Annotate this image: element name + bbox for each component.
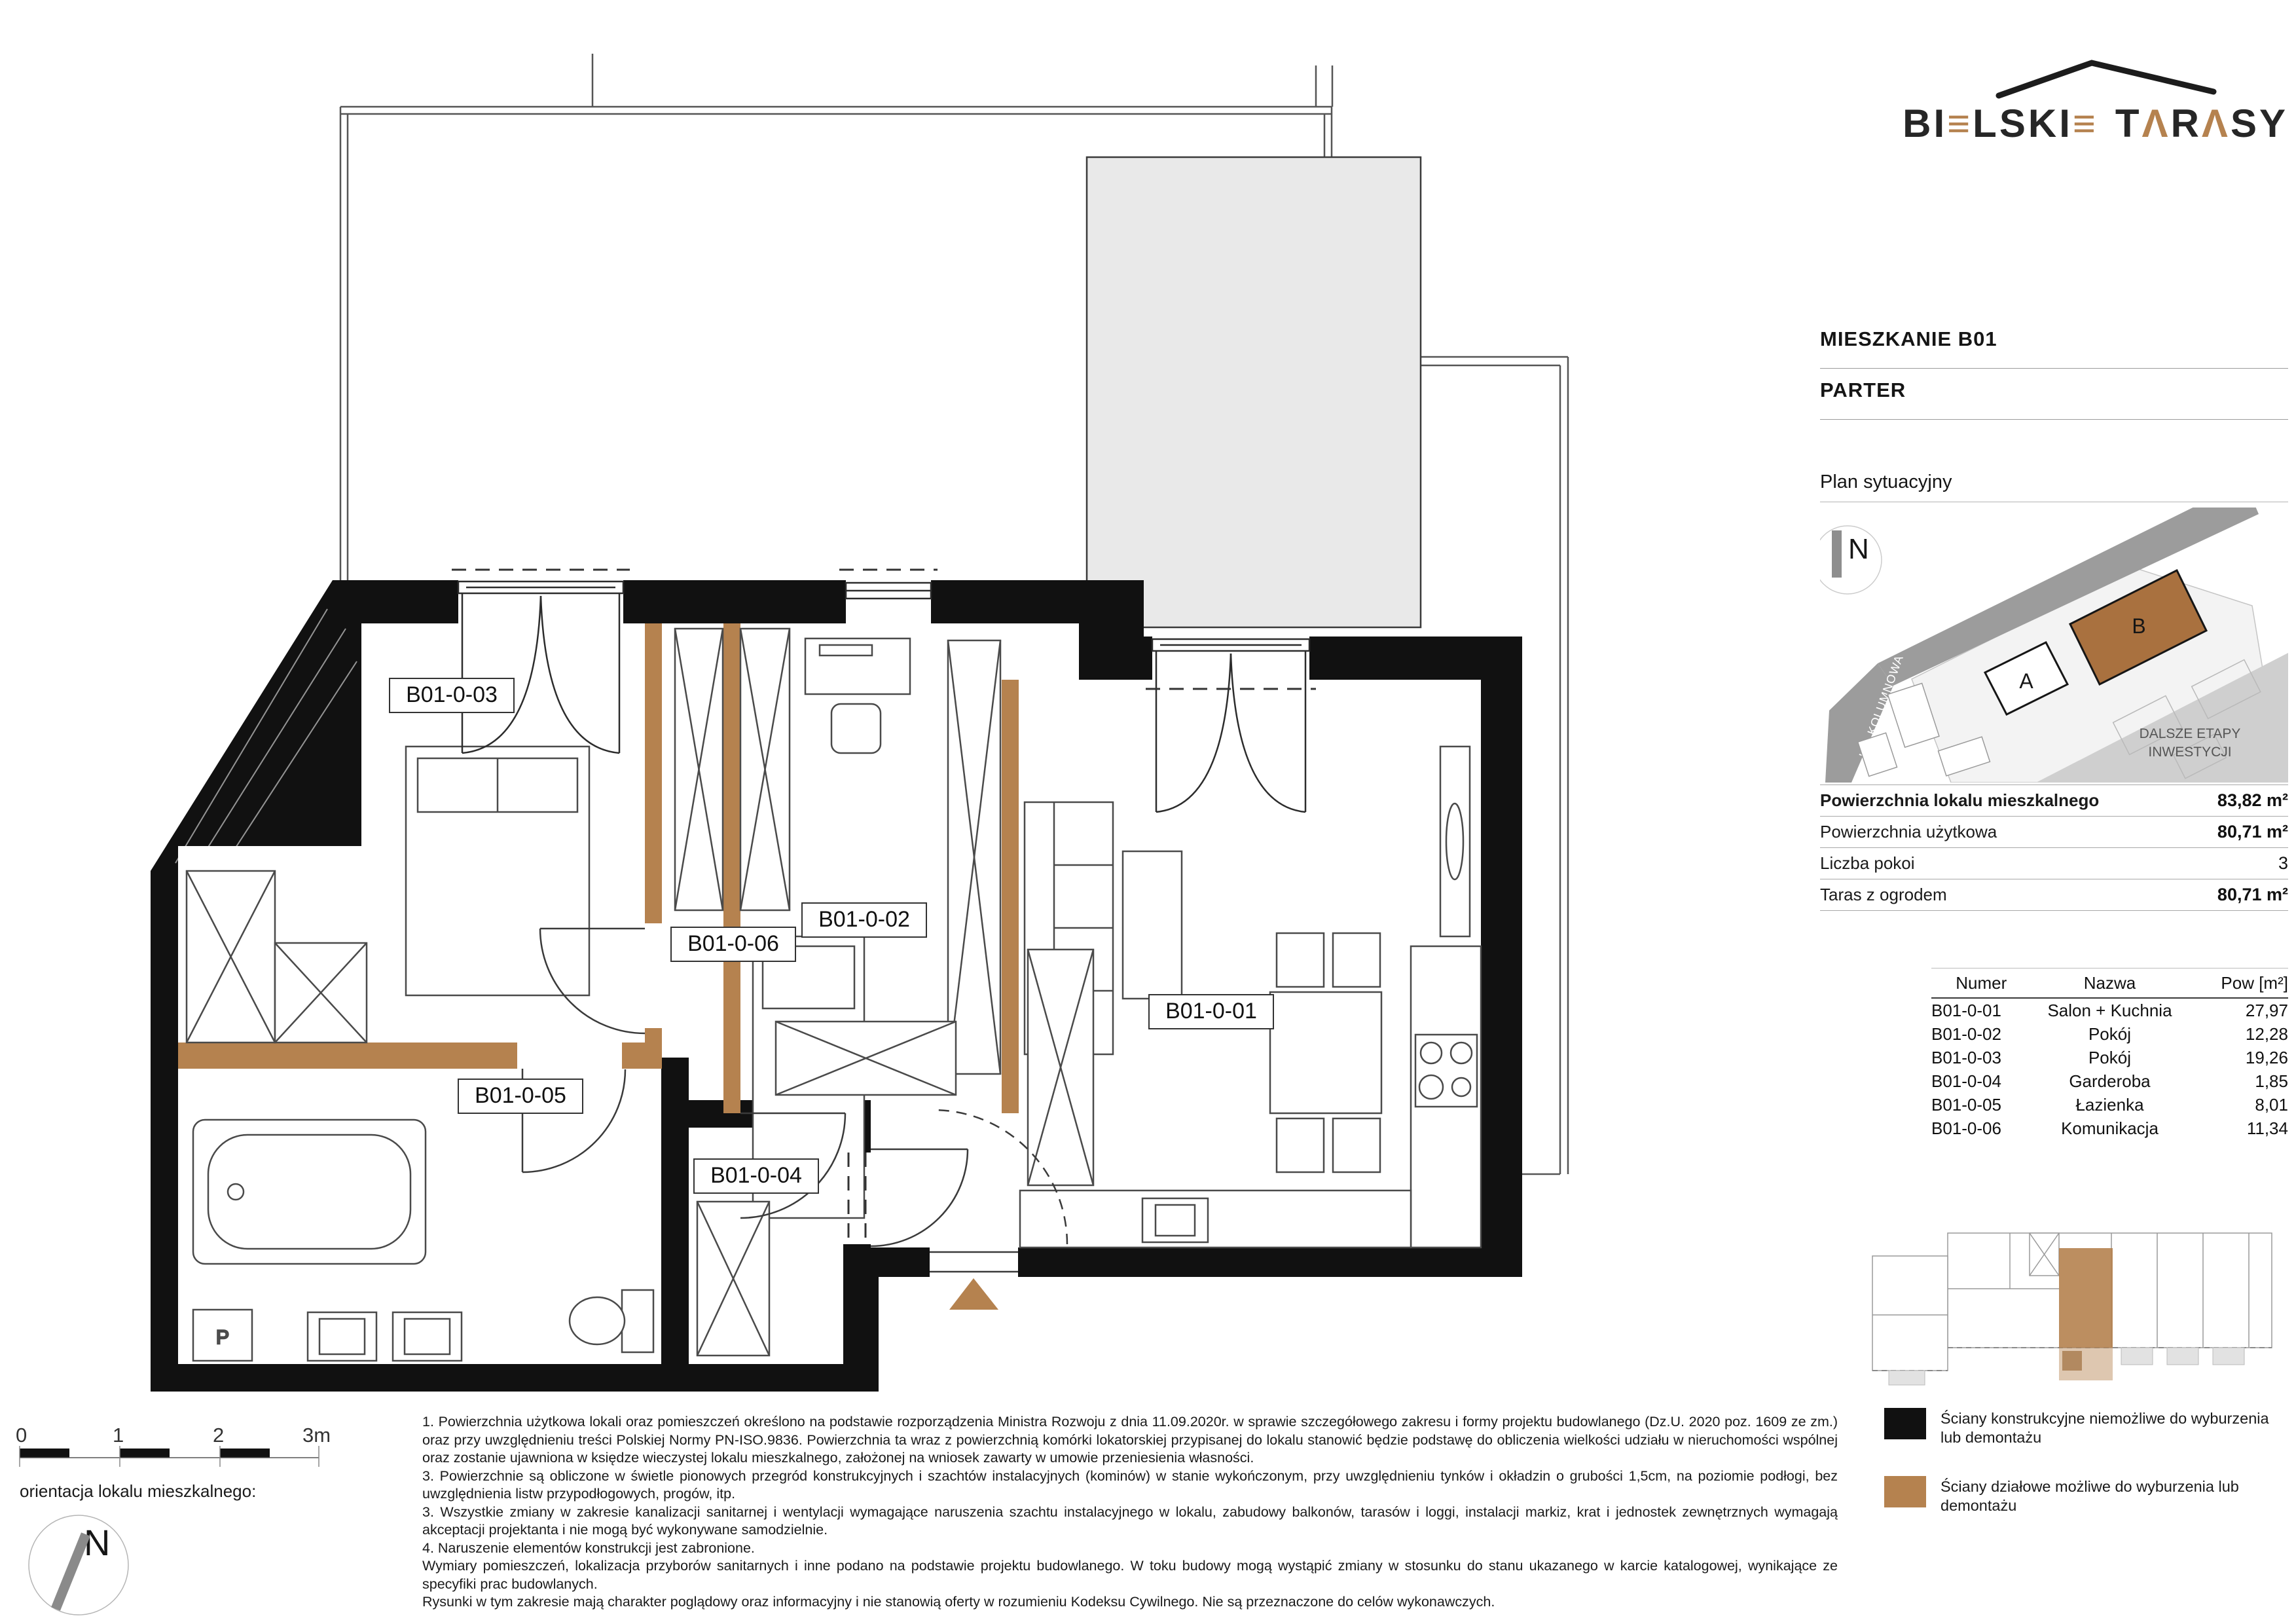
terrace-deck (1087, 157, 1421, 627)
north-label: N (84, 1522, 110, 1563)
coffee-table (1123, 851, 1182, 999)
room-label: B01-0-03 (390, 678, 514, 712)
summary-table: Powierzchnia lokalu mieszkalnego 83,82 m… (1820, 784, 2288, 911)
footnote: 3. Powierzchnie są obliczone w świetle p… (422, 1467, 1838, 1504)
chair (1277, 933, 1324, 987)
wardrobe-x (948, 640, 1000, 1074)
svg-text:B01-0-05: B01-0-05 (475, 1083, 566, 1108)
brand-name: BI≡LSKI≡TΛRΛSY (1820, 101, 2288, 146)
footnote: 3. Wszystkie zmiany w zakresie kanalizac… (422, 1504, 1838, 1540)
room-label: B01-0-01 (1149, 995, 1273, 1029)
summary-row: Taras z ogrodem 80,71 m² (1820, 879, 2288, 911)
highlighted-unit (2059, 1248, 2113, 1348)
building-a-label: A (2019, 669, 2033, 693)
legend: Ściany konstrukcyjne niemożliwe do wybur… (1884, 1408, 2290, 1544)
svg-text:0: 0 (16, 1426, 27, 1447)
footnote: 1. Powierzchnia użytkowa lokali oraz pom… (422, 1413, 1838, 1467)
svg-text:B01-0-04: B01-0-04 (710, 1163, 802, 1188)
apartment-title: MIESZKANIE B01 (1820, 327, 2288, 351)
summary-row: Liczba pokoi 3 (1820, 847, 2288, 879)
divider (1820, 419, 2288, 420)
future-stages-label: DALSZE ETAPY (2140, 726, 2241, 741)
svg-text:3m: 3m (302, 1426, 331, 1447)
table-row: B01-0-03Pokój19,26 (1931, 1046, 2288, 1069)
situational-plan-title: Plan sytuacyjny (1820, 471, 2288, 493)
divider (1820, 502, 2288, 502)
footnote: 4. Naruszenie elementów konstrukcji jest… (422, 1540, 1838, 1558)
table-row: B01-0-04Garderoba1,85 (1931, 1069, 2288, 1093)
svg-text:INWESTYCJI: INWESTYCJI (2148, 745, 2231, 760)
table-row: B01-0-05Łazienka8,01 (1931, 1093, 2288, 1116)
orientation-compass: N (16, 1503, 147, 1621)
partition-wall-swatch (1884, 1476, 1926, 1507)
legend-item: Ściany działowe możliwe do wyburzenia lu… (1884, 1476, 2290, 1515)
svg-text:1: 1 (113, 1426, 124, 1447)
desk-chair (831, 704, 881, 753)
floor-plan: P (0, 0, 1624, 1441)
footnote: Rysunki w tym zakresie mają charakter po… (422, 1593, 1838, 1612)
situational-map: UL. FILAROWA UL. KOLUMNOWA A B DALSZE ET… (1820, 507, 2288, 783)
brand-logo: BI≡LSKI≡TΛRΛSY (1820, 58, 2288, 146)
footnotes: 1. Powierzchnia użytkowa lokali oraz pom… (422, 1413, 1838, 1612)
dining-table (1270, 992, 1381, 1113)
chair (1333, 933, 1380, 987)
wardrobe-x (187, 871, 367, 1043)
building-b-label: B (2132, 614, 2145, 638)
orientation-caption: orientacja lokalu mieszkalnego: (20, 1481, 256, 1502)
scale-bar: 0 1 2 3m (14, 1426, 342, 1472)
svg-text:B01-0-02: B01-0-02 (818, 907, 910, 932)
rooms-table-header: Numer Nazwa Pow [m²] (1931, 968, 2288, 999)
svg-text:2: 2 (213, 1426, 224, 1447)
table-row: B01-0-01Salon + Kuchnia27,97 (1931, 999, 2288, 1022)
svg-text:B01-0-03: B01-0-03 (406, 682, 498, 707)
room-label: B01-0-04 (694, 1159, 818, 1193)
legend-item: Ściany konstrukcyjne niemożliwe do wybur… (1884, 1408, 2290, 1447)
toilet-tank (622, 1290, 653, 1352)
svg-text:B01-0-06: B01-0-06 (687, 931, 779, 956)
floor-title: PARTER (1820, 378, 2288, 402)
rooms-table: Numer Nazwa Pow [m²] B01-0-01Salon + Kuc… (1931, 968, 2288, 1140)
chair (1333, 1118, 1380, 1172)
svg-text:B01-0-01: B01-0-01 (1165, 999, 1257, 1024)
structural-wall-swatch (1884, 1408, 1926, 1439)
room-label: B01-0-05 (458, 1079, 583, 1113)
room-label: B01-0-06 (671, 927, 795, 961)
chair (1277, 1118, 1324, 1172)
summary-row: Powierzchnia użytkowa 80,71 m² (1820, 816, 2288, 847)
table-row: B01-0-02Pokój12,28 (1931, 1022, 2288, 1046)
roof-icon (1995, 58, 2217, 100)
wardrobe-x (776, 1022, 956, 1095)
tv (1446, 803, 1463, 879)
divider (1820, 368, 2288, 369)
room-label: B01-0-02 (802, 903, 926, 937)
footnote: Wymiary pomieszczeń, lokalizacja przybor… (422, 1557, 1838, 1593)
table-row: B01-0-06Komunikacja11,34 (1931, 1116, 2288, 1140)
kitchen-counter (1020, 1190, 1411, 1247)
summary-row: Powierzchnia lokalu mieszkalnego 83,82 m… (1820, 784, 2288, 816)
wardrobe-x (697, 1202, 769, 1356)
toilet (570, 1297, 625, 1344)
north-label: N (1848, 533, 1869, 565)
washer-letter: P (216, 1327, 229, 1348)
tall-cabinet-x (1028, 950, 1093, 1185)
catalog-page: P (0, 0, 2296, 1624)
entrance-arrow (949, 1278, 998, 1310)
floor-overview (1863, 1210, 2282, 1387)
